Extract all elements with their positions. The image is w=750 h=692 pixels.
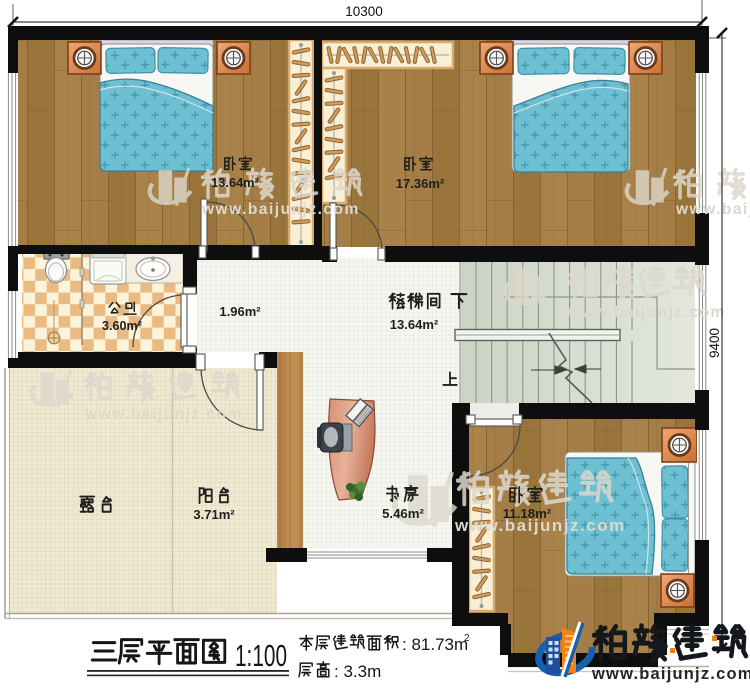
svg-text:2: 2 (464, 633, 470, 644)
svg-text:17.36m²: 17.36m² (396, 176, 445, 191)
svg-text:www.baijunjz.com: www.baijunjz.com (201, 201, 360, 218)
svg-text:www.baijunjz.com: www.baijunjz.com (675, 201, 750, 218)
svg-text:: 81.73m: : 81.73m (402, 635, 468, 654)
svg-text:9400: 9400 (707, 328, 722, 358)
svg-text:3.71m²: 3.71m² (193, 507, 235, 522)
svg-text:1.96m²: 1.96m² (219, 304, 261, 319)
svg-text:www.baijunjz.com: www.baijunjz.com (591, 665, 750, 683)
svg-text:10300: 10300 (345, 4, 383, 19)
svg-text:11.18m²: 11.18m² (503, 506, 552, 521)
svg-text:13.64m²: 13.64m² (211, 175, 259, 190)
svg-text:www.baijunjz.com: www.baijunjz.com (84, 406, 243, 423)
svg-text:3.60m²: 3.60m² (102, 319, 142, 333)
svg-text:1:100: 1:100 (235, 638, 287, 673)
svg-text:5.46m²: 5.46m² (382, 506, 424, 521)
svg-text:13.64m²: 13.64m² (390, 317, 439, 332)
svg-text:: 3.3m: : 3.3m (334, 662, 381, 681)
svg-text:www.baijunjz.com: www.baijunjz.com (567, 304, 726, 321)
